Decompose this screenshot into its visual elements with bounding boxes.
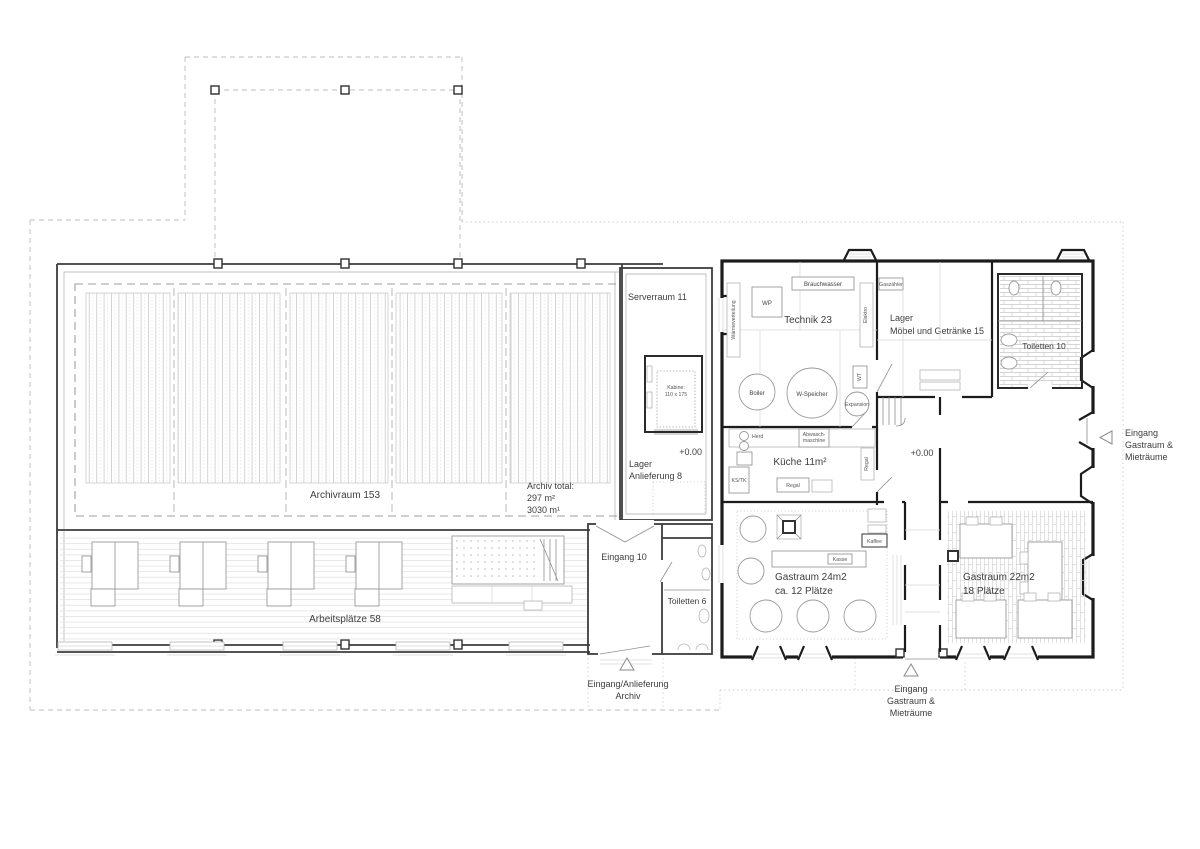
archivraum: Archivraum 153 Archiv total: 297 m² 3030…	[75, 284, 620, 516]
svg-text:Mieträume: Mieträume	[890, 708, 933, 718]
entrance-right-annotation: Eingang Gastraum & Mieträume	[1100, 428, 1173, 462]
svg-text:297 m²: 297 m²	[527, 493, 555, 503]
svg-text:Archiv: Archiv	[615, 691, 641, 701]
room-label-arbeitsplaetze: Arbeitsplätze 58	[309, 614, 381, 625]
entrance-archiv-annotation: Eingang/Anlieferung Archiv	[587, 658, 668, 701]
gastraum24-room: Kasse Kaffee Gastraum 24m2 ca. 12 Plätze	[737, 509, 901, 639]
elevator-cabin-size: 110 x 175	[665, 392, 688, 398]
equip-label-brauchwasser: Brauchwasser	[804, 282, 842, 288]
svg-text:maschine: maschine	[803, 438, 825, 444]
entrance-triangle-icon	[1100, 431, 1112, 444]
svg-text:Gastraum &: Gastraum &	[887, 696, 935, 706]
room-label-toiletten10: Toiletten 10	[1022, 341, 1066, 351]
floor-plan-page: Archivraum 153 Archiv total: 297 m² 3030…	[0, 0, 1200, 849]
archiv-total-note: Archiv total: 297 m² 3030 m¹	[527, 481, 574, 515]
svg-text:Anlieferung 8: Anlieferung 8	[629, 471, 682, 481]
lager-moebel-room: Gaszähler Lager Möbel und Getränke 15	[877, 262, 992, 397]
floor-plan-canvas: Archivraum 153 Archiv total: 297 m² 3030…	[0, 0, 1200, 849]
equip-label-wp: WP	[762, 301, 772, 307]
toiletten10-room: Toiletten 10	[998, 274, 1082, 391]
gastraum22-room: Gastraum 22m2 18 Plätze	[947, 511, 1086, 643]
equip-label-kaffee: Kaffee	[867, 539, 882, 545]
equip-label-regal-wall: Regal	[864, 457, 870, 471]
svg-text:Gastraum 22m2: Gastraum 22m2	[963, 572, 1035, 583]
equip-label-ks-tk: KS/TK	[732, 478, 748, 484]
equip-label-kasse: Kasse	[833, 557, 848, 563]
svg-text:Lager: Lager	[890, 313, 913, 323]
equip-label-herd: Herd	[752, 434, 763, 440]
equip-label-w-speicher: W-Speicher	[796, 392, 827, 398]
svg-text:Gastraum 24m2: Gastraum 24m2	[775, 572, 847, 583]
entrance-triangle-icon	[904, 664, 918, 676]
room-label-technik: Technik 23	[784, 315, 832, 326]
level-label: +0.00	[679, 447, 702, 457]
svg-text:Archiv total:: Archiv total:	[527, 481, 574, 491]
equip-label-boiler: Boiler	[749, 391, 764, 397]
stair-archive	[452, 536, 572, 610]
toiletten6: Toiletten 6	[658, 545, 710, 650]
room-label-archivraum: Archivraum 153	[310, 490, 380, 501]
equip-label-elektro: Elektro	[863, 307, 869, 323]
arbeitsplaetze-room: Arbeitsplätze 58	[55, 533, 588, 655]
archive-shelving	[86, 288, 610, 512]
svg-text:Möbel und Getränke 15: Möbel und Getränke 15	[890, 326, 984, 336]
bottom-openings	[752, 646, 1038, 662]
svg-text:Eingang: Eingang	[894, 684, 927, 694]
room-label-kueche: Küche 11m²	[773, 457, 827, 468]
svg-text:Eingang/Anlieferung: Eingang/Anlieferung	[587, 679, 668, 689]
equip-label-expansion: Expansion	[845, 402, 869, 408]
equip-label-regal-floor: Regal	[786, 483, 800, 489]
svg-text:Gastraum &: Gastraum &	[1125, 440, 1173, 450]
elevator: Kabine: 110 x 175	[645, 356, 702, 434]
equip-label-wt: WT	[857, 372, 863, 381]
room-label-serverraum: Serverraum 11	[628, 292, 687, 302]
column	[777, 515, 801, 539]
serverraum-block: Serverraum 11 Kabine: 110 x 175 +0.00 La…	[620, 268, 712, 520]
svg-text:ca. 12 Plätze: ca. 12 Plätze	[775, 586, 833, 597]
lager-anlieferung: +0.00 Lager Anlieferung 8	[629, 447, 705, 514]
equip-label-gaszaehler: Gaszähler	[879, 282, 903, 288]
eingang-block: Eingang 10 Toiletten 6	[588, 520, 712, 664]
svg-text:Eingang: Eingang	[1125, 428, 1158, 438]
svg-text:18 Plätze: 18 Plätze	[963, 586, 1005, 597]
stair-corridor	[883, 397, 905, 426]
equip-label-waermeverteilung: Wärmeverteilung	[731, 300, 737, 339]
level-label-corridor: +0.00	[911, 448, 934, 458]
room-label-eingang10: Eingang 10	[601, 552, 647, 562]
room-label-toiletten6: Toiletten 6	[668, 596, 707, 606]
kueche-room: Herd Abwasch- maschine Regal KS/TK Regal…	[729, 429, 875, 493]
svg-text:3030 m¹: 3030 m¹	[527, 505, 560, 515]
svg-text:Mieträume: Mieträume	[1125, 452, 1168, 462]
entrance-bottom-annotation: Eingang Gastraum & Mieträume	[887, 664, 935, 718]
svg-text:Lager: Lager	[629, 459, 652, 469]
elevator-cabin-label: Kabine:	[667, 385, 685, 391]
